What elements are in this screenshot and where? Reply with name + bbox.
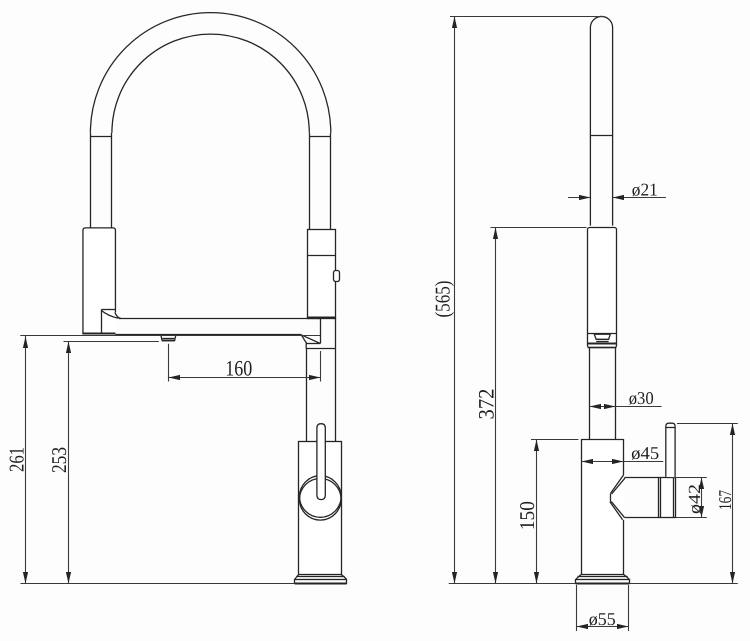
svg-text:150: 150 bbox=[515, 501, 539, 530]
svg-text:ø30: ø30 bbox=[629, 388, 654, 408]
svg-text:167: 167 bbox=[715, 490, 735, 510]
svg-text:372: 372 bbox=[474, 389, 499, 420]
svg-text:261: 261 bbox=[4, 447, 28, 472]
svg-text:ø42: ø42 bbox=[685, 484, 704, 514]
svg-text:(565): (565) bbox=[431, 281, 455, 318]
svg-text:ø45: ø45 bbox=[631, 443, 659, 463]
svg-text:ø21: ø21 bbox=[632, 179, 658, 199]
svg-text:160: 160 bbox=[225, 355, 252, 380]
svg-text:253: 253 bbox=[47, 447, 71, 473]
svg-text:ø55: ø55 bbox=[589, 609, 616, 629]
